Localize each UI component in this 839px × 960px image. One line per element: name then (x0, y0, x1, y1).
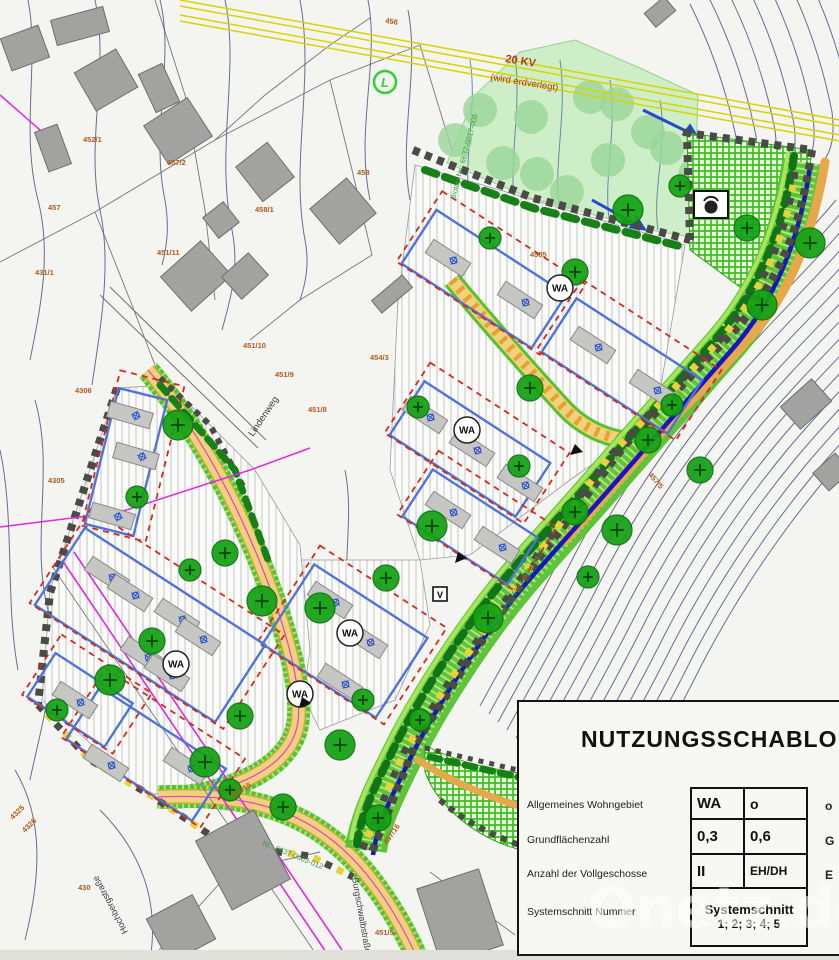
legend-cell: WA (692, 789, 745, 818)
meadow-tree-icon (486, 146, 520, 180)
tree-icon (270, 794, 296, 820)
tree-icon (635, 427, 661, 453)
tree-icon (747, 290, 777, 320)
tree-icon (139, 628, 165, 654)
existing-building (51, 6, 110, 45)
parcel-label: 451/10 (243, 341, 266, 350)
existing-building (222, 253, 269, 299)
parcel-label: 457/2 (167, 158, 186, 167)
existing-building (310, 178, 376, 244)
existing-building (138, 63, 179, 112)
tree-icon (126, 486, 148, 508)
parcel-label: 451/9 (275, 370, 294, 379)
tree-icon (517, 375, 543, 401)
parcel-label: 451/11 (157, 248, 180, 257)
tree-icon (562, 499, 588, 525)
tree-icon (577, 566, 599, 588)
parcel-label: 430 (78, 883, 91, 892)
existing-building (813, 453, 839, 491)
v-symbol: V (433, 587, 447, 601)
contour-line (804, 0, 839, 156)
tree-icon (163, 410, 193, 440)
street-label-hochbergstrasse: Hochbergstraße (91, 874, 130, 936)
tree-icon (479, 227, 501, 249)
zone-badge: WA (454, 417, 480, 443)
legend-row-label: Grundflächenzahl (527, 834, 609, 846)
meadow-tree-icon (550, 175, 584, 209)
zone-badge-label: WA (459, 426, 475, 437)
tree-icon (46, 699, 68, 721)
parcel-label: 454/3 (370, 353, 389, 362)
tree-icon (373, 565, 399, 591)
tree-icon (365, 805, 391, 831)
legend-cell: 0,6 (745, 820, 806, 853)
parcel-label: 4306 (75, 386, 92, 395)
parcel-label: 452/1 (83, 135, 102, 144)
tree-icon (407, 396, 429, 418)
legend-cell: o (745, 789, 806, 818)
existing-building (417, 869, 504, 960)
existing-building (236, 142, 295, 201)
v-symbol-label: V (437, 590, 443, 600)
tree-icon (613, 195, 643, 225)
existing-building (203, 202, 239, 238)
zone-badge: WA (163, 651, 189, 677)
tree-icon (687, 457, 713, 483)
zone-badge-label: WA (342, 629, 358, 640)
l-symbol: L (374, 71, 396, 93)
legend-row-label: Allgemeines Wohngebiet (527, 799, 643, 811)
watermark: Onetz.de (588, 876, 839, 941)
parcel-label: 451/5 (375, 928, 394, 937)
parcel-label: 451/8 (308, 405, 327, 414)
zone-badge-label: WA (168, 660, 184, 671)
legend-cell: 0,3 (692, 820, 745, 853)
parcel-label: 4305 (48, 476, 65, 485)
tree-icon (795, 228, 825, 258)
tree-icon (247, 586, 277, 616)
tree-icon (227, 703, 253, 729)
basin-icon (694, 191, 728, 218)
meadow-tree-icon (650, 131, 684, 165)
meadow-tree-icon (520, 157, 554, 191)
tree-icon (190, 747, 220, 777)
legend-fragment: G (825, 834, 834, 848)
parcel-label: 458/1 (255, 205, 274, 214)
tree-icon (508, 455, 530, 477)
legend-fragment: o (825, 799, 832, 813)
tree-icon (409, 709, 431, 731)
existing-building (35, 124, 72, 172)
parcel-label: 4585 (530, 250, 547, 259)
zone-badge-label: WA (552, 284, 568, 295)
parcel-label: 4325 (8, 803, 26, 821)
existing-building (644, 0, 675, 27)
tree-icon (95, 665, 125, 695)
zone-badge-label: WA (292, 690, 308, 701)
tree-icon (212, 540, 238, 566)
tree-icon (602, 515, 632, 545)
meadow-tree-icon (591, 143, 625, 177)
zone-badge: WA (337, 620, 363, 646)
parcel-label: 458 (357, 168, 370, 177)
tree-icon (305, 593, 335, 623)
tree-icon (352, 689, 374, 711)
tree-icon (734, 215, 760, 241)
parcel-label: 431/1 (35, 268, 54, 277)
tree-icon (325, 730, 355, 760)
zone-badge: WA (547, 275, 573, 301)
parcel-label: 457 (48, 203, 61, 212)
site-plan-page: WAWAWAWAWA L V 20 KV (wird erdverlegt) B… (0, 0, 839, 960)
existing-building (780, 379, 831, 429)
meadow-tree-icon (514, 100, 548, 134)
l-symbol-label: L (381, 75, 389, 90)
parcel-label: 456 (385, 16, 399, 27)
tree-icon (179, 559, 201, 581)
street-label-lindenweg: Lindenweg (246, 394, 281, 438)
parcel-label: 457/5 (646, 471, 665, 491)
tree-icon (417, 511, 447, 541)
tree-icon (661, 394, 683, 416)
tree-icon (669, 175, 691, 197)
existing-building (0, 25, 49, 71)
legend-title: NUTZUNGSSCHABLONE (581, 726, 839, 753)
existing-building (74, 49, 138, 111)
